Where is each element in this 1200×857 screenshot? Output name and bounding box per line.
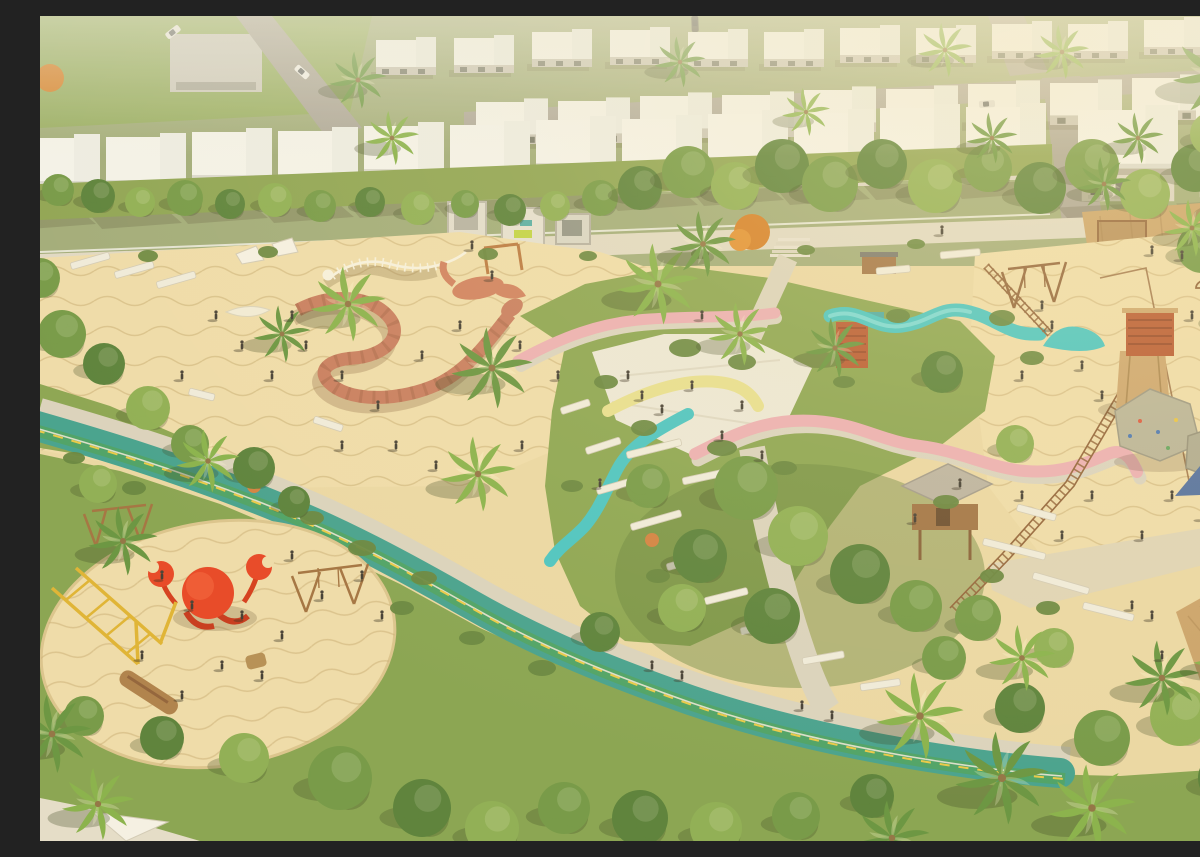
aerial-park-render: Aerial 3D render of a desert community p… bbox=[40, 16, 1200, 841]
warm-tint bbox=[40, 16, 1200, 841]
render-canvas bbox=[40, 16, 1200, 841]
lighting-overlays bbox=[40, 16, 1200, 841]
